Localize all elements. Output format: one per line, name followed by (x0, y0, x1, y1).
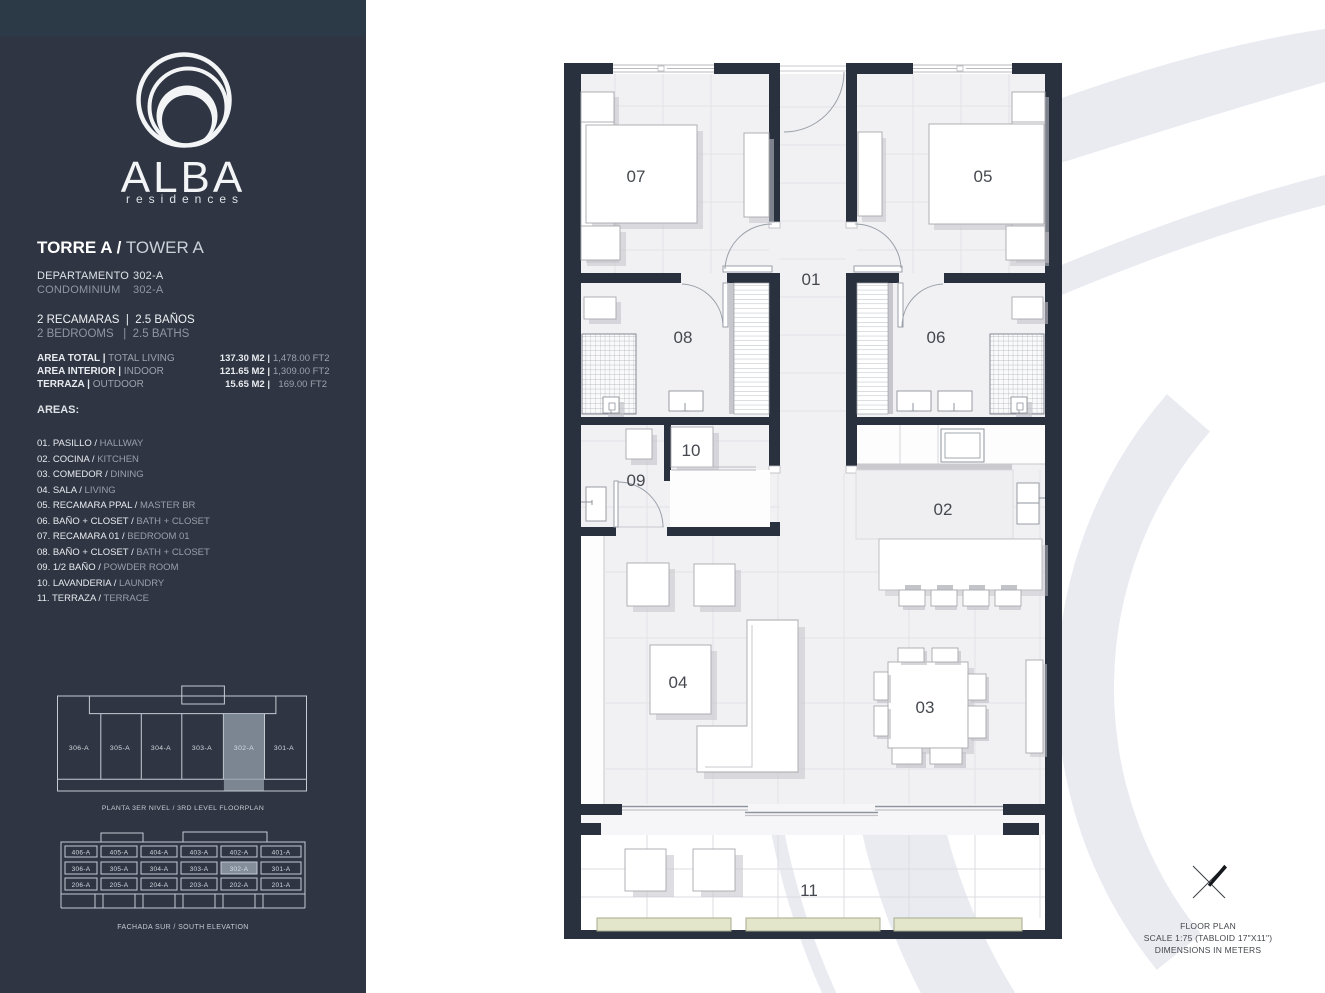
svg-text:404-A: 404-A (150, 850, 169, 857)
svg-text:301-A: 301-A (272, 866, 291, 873)
svg-text:SCALE 1:75 (TABLOID 17"X11"): SCALE 1:75 (TABLOID 17"X11") (1144, 933, 1273, 943)
svg-text:202-A: 202-A (230, 882, 249, 889)
svg-text:403-A: 403-A (190, 850, 209, 857)
svg-text:DIMENSIONS IN METERS: DIMENSIONS IN METERS (1155, 945, 1262, 955)
svg-text:03: 03 (916, 698, 935, 717)
svg-text:304-A: 304-A (150, 866, 169, 873)
svg-text:405-A: 405-A (110, 850, 129, 857)
svg-text:406-A: 406-A (72, 850, 91, 857)
svg-text:01: 01 (802, 270, 821, 289)
svg-text:05: 05 (974, 167, 993, 186)
svg-text:04: 04 (669, 673, 688, 692)
svg-text:205-A: 205-A (110, 882, 129, 889)
svg-text:02: 02 (934, 500, 953, 519)
svg-text:07: 07 (627, 167, 646, 186)
svg-text:201-A: 201-A (272, 882, 291, 889)
svg-text:301-A: 301-A (274, 745, 294, 752)
svg-text:401-A: 401-A (272, 850, 291, 857)
svg-text:08: 08 (674, 328, 693, 347)
svg-text:304-A: 304-A (151, 745, 171, 752)
svg-text:303-A: 303-A (190, 866, 209, 873)
svg-text:06: 06 (927, 328, 946, 347)
svg-text:402-A: 402-A (230, 850, 249, 857)
svg-text:09: 09 (627, 471, 646, 490)
svg-text:10: 10 (682, 441, 701, 460)
svg-text:203-A: 203-A (190, 882, 209, 889)
svg-text:FLOOR PLAN: FLOOR PLAN (1180, 921, 1236, 931)
svg-text:306-A: 306-A (69, 745, 89, 752)
svg-text:303-A: 303-A (192, 745, 212, 752)
svg-text:302-A: 302-A (234, 745, 254, 752)
svg-text:302-A: 302-A (230, 866, 249, 873)
svg-text:11: 11 (800, 881, 818, 900)
svg-text:206-A: 206-A (72, 882, 91, 889)
svg-text:306-A: 306-A (72, 866, 91, 873)
svg-text:305-A: 305-A (110, 866, 129, 873)
svg-text:305-A: 305-A (110, 745, 130, 752)
svg-text:204-A: 204-A (150, 882, 169, 889)
